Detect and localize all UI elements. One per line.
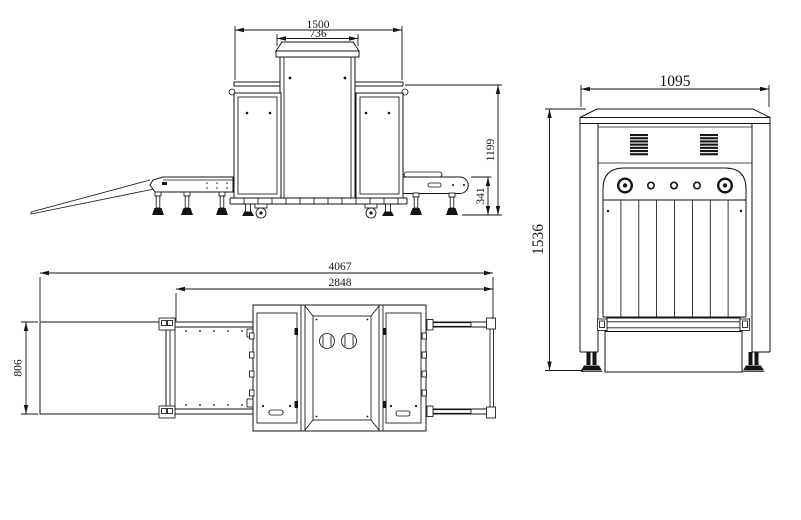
dim-front-conveyor-height: 341 [471,177,492,215]
dim-plan-conveyor-width: 806 [13,322,39,414]
dim-front-hood-width-label: 736 [309,28,327,40]
front-base-rail [230,198,407,204]
front-right-cabinet [356,93,403,198]
xray-scanner-drawing: 1500 736 1199 341 [0,0,801,520]
dim-front-conveyor-height-label: 341 [475,187,487,205]
control-indicator-right [718,179,732,193]
plan-left-panel [257,313,298,423]
side-tunnel-curtain [603,200,746,317]
dim-front-frame-height-label: 1199 [485,138,497,161]
front-machine-body [229,42,408,218]
side-base-box [605,332,742,373]
plan-housing [250,305,427,431]
front-left-caster [255,204,267,218]
control-indicator-small-3 [694,182,700,188]
dim-side-overall-height: 1536 [530,109,586,371]
side-right-foot [743,352,765,372]
plan-center-panel [313,316,371,420]
side-cap [580,109,770,124]
front-left-foot [242,204,254,216]
control-indicator-small-2 [671,182,677,188]
front-left-conveyor [150,177,233,192]
vent-grille-left [630,134,648,155]
dim-side-overall-height-label: 1536 [530,224,547,255]
plan-left-conveyor-rails [175,322,253,414]
dim-side-overall-width-label: 1095 [660,73,691,90]
vent-grille-right [700,134,718,155]
front-ramp [31,180,154,214]
plan-right-conveyor-rails [427,318,496,418]
side-conveyor-roller [598,318,750,332]
dim-plan-conveyor-width-label: 806 [13,359,25,377]
front-right-caster [365,204,377,218]
front-right-conveyor [403,172,468,194]
side-left-foot [581,352,603,372]
plan-ramp [40,322,166,414]
control-indicator-small-1 [648,182,654,188]
front-elevation-view: 1500 736 1199 341 [31,19,502,218]
side-vent-panel [598,127,752,163]
front-left-conveyor-legs [152,192,228,215]
technical-drawing-canvas: 1500 736 1199 341 [0,0,801,520]
plan-view: 4067 2848 806 [13,261,496,431]
dim-side-overall-width: 1095 [581,73,769,107]
control-indicator-left [618,179,632,193]
front-right-foot [382,204,394,216]
side-elevation-view: 1095 1536 [530,73,770,372]
front-tower [276,42,359,198]
dim-plan-overall-length-label: 4067 [329,261,352,273]
plan-right-panel [383,313,421,423]
dim-plan-machine-length-label: 2848 [329,277,352,289]
front-left-cabinet [234,93,281,198]
front-right-conveyor-legs [410,193,458,215]
side-control-panel [603,168,746,200]
